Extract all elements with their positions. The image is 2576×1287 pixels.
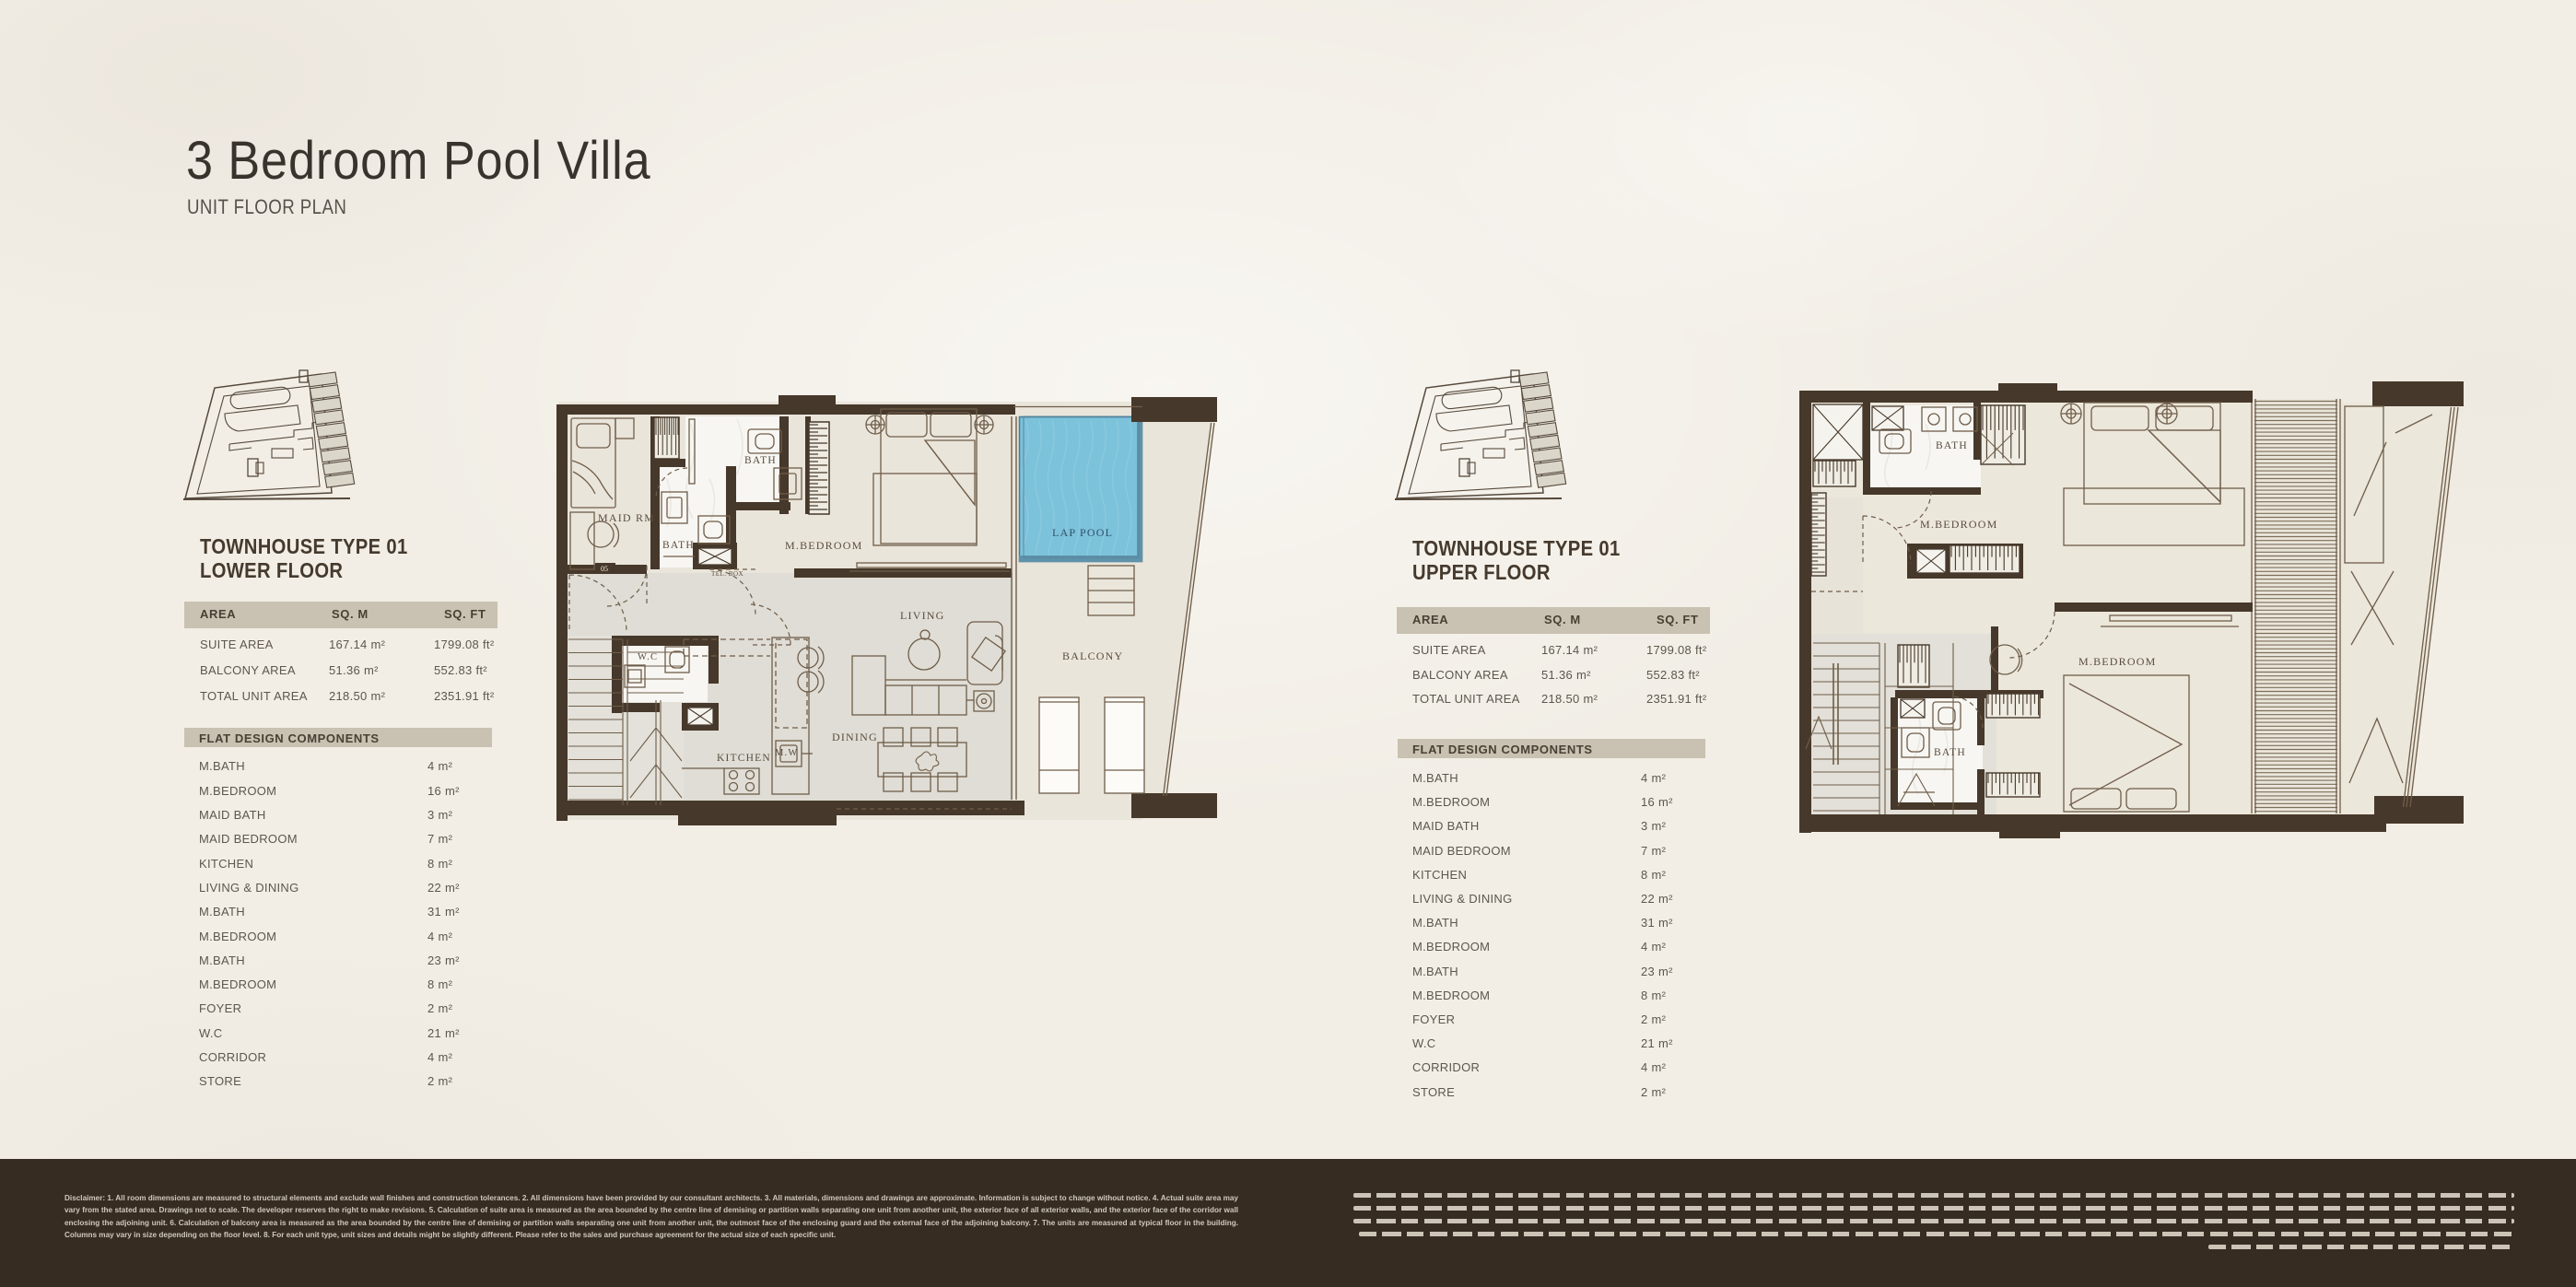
svg-text:BATH: BATH [1936,440,1968,451]
svg-text:BATH: BATH [744,455,777,466]
svg-text:M.BEDROOM: M.BEDROOM [2078,655,2156,668]
svg-text:BATH: BATH [1934,747,1966,758]
svg-text:MAID RM: MAID RM [598,511,655,524]
svg-text:M.BEDROOM: M.BEDROOM [1920,518,1997,531]
svg-text:W.C: W.C [638,652,658,662]
svg-text:BATH: BATH [662,540,695,551]
svg-text:05: 05 [601,565,608,573]
svg-text:BALCONY: BALCONY [1062,649,1123,662]
svg-text:M.W: M.W [775,748,798,758]
svg-text:DINING: DINING [832,731,878,743]
svg-text:KITCHEN: KITCHEN [717,753,771,764]
svg-text:M.BEDROOM: M.BEDROOM [785,539,862,552]
svg-text:LAP POOL: LAP POOL [1052,526,1113,539]
svg-text:LIVING: LIVING [900,609,945,622]
svg-text:TEL. BOX: TEL. BOX [711,570,744,578]
